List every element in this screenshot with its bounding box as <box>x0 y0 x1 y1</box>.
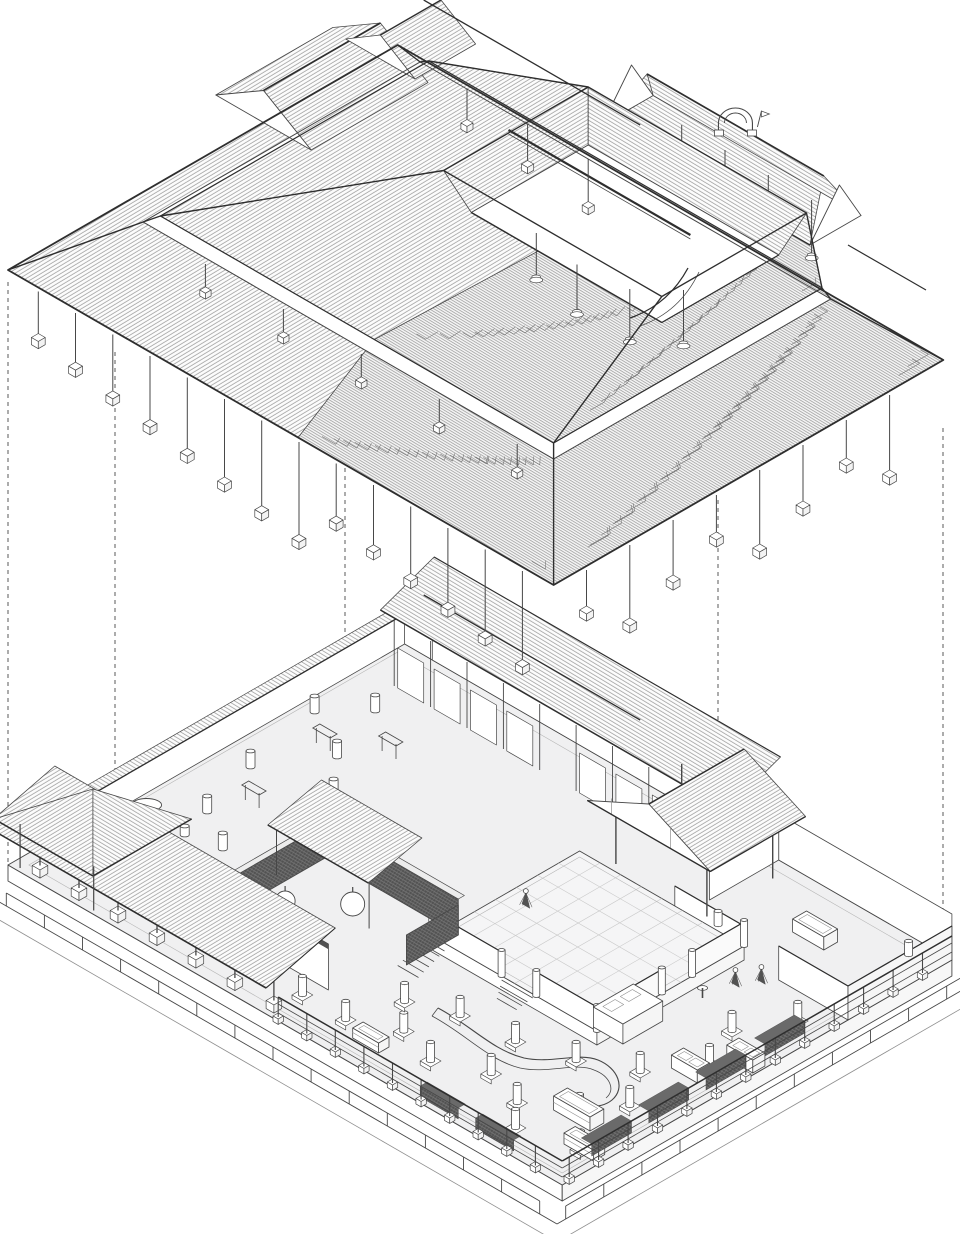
drawing-canvas <box>0 0 960 1234</box>
ground-floor-level <box>0 557 960 1234</box>
architectural-drawing <box>0 0 960 1234</box>
roof-assembly-level <box>8 0 943 675</box>
